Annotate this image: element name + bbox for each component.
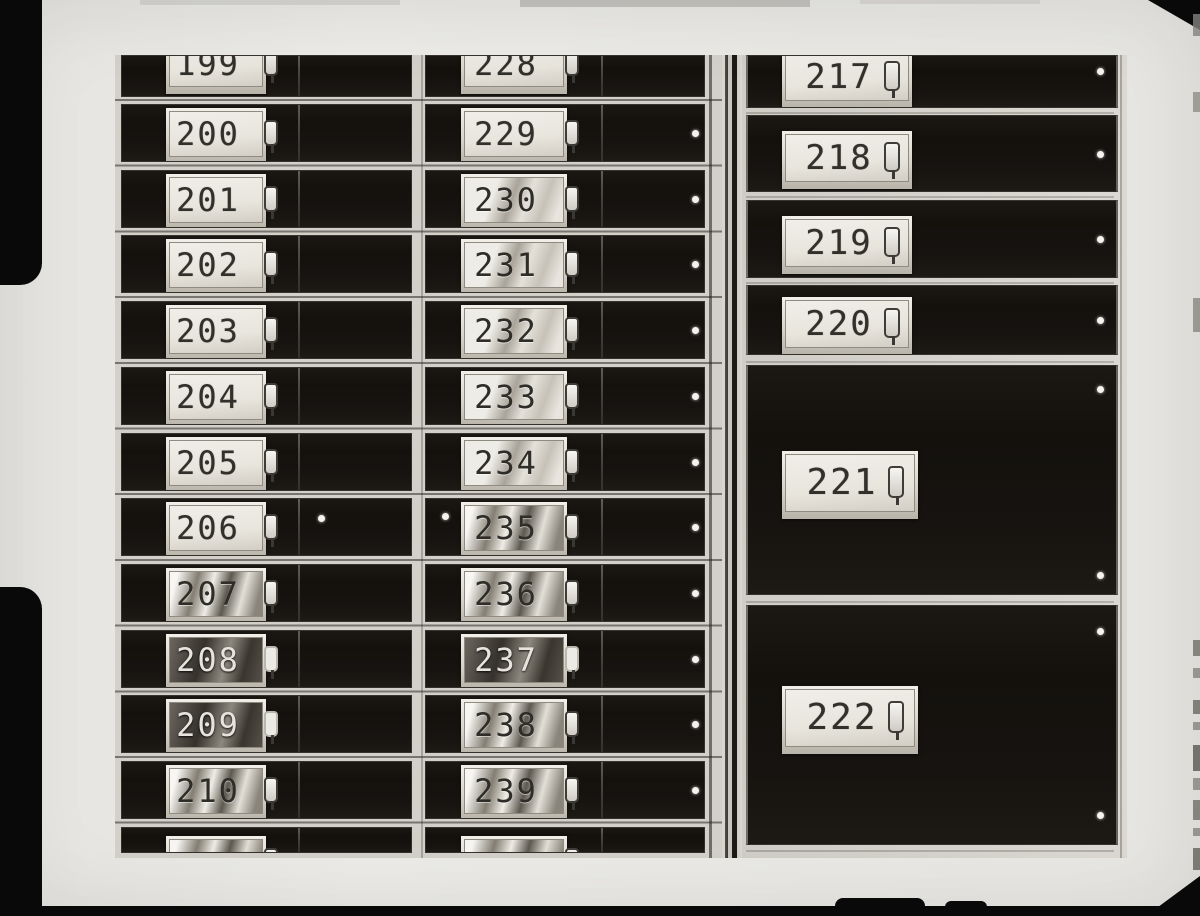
plate-number: 230 (465, 177, 563, 223)
rivet-dot (692, 261, 699, 268)
top-edge-smudge (860, 0, 1040, 4)
rail-groove (746, 601, 1114, 603)
number-plate-holder (461, 836, 567, 853)
number-plate-holder: 203 (166, 305, 266, 359)
rivet-dot (692, 393, 699, 400)
number-plate-holder: 234 (461, 437, 567, 491)
number-plate-holder: 206 (166, 502, 266, 556)
photograph: 1992282002292012302022312032322042332052… (0, 0, 1200, 916)
plate-number: 233 (465, 374, 563, 420)
number-plate: 203 (169, 308, 263, 354)
plate-number: 202 (170, 242, 262, 288)
box-face: 235 (425, 498, 705, 556)
plate-number: 232 (465, 308, 563, 354)
key-latch-icon (884, 308, 900, 338)
number-plate: 202 (169, 242, 263, 288)
film-edge-tick (1193, 640, 1200, 656)
box-face: 207 (121, 564, 412, 622)
key-latch-icon (565, 449, 579, 475)
rivet-dot (1097, 236, 1104, 243)
number-plate: 204 (169, 374, 263, 420)
box-face: 218 (746, 115, 1118, 192)
plate-number: 236 (465, 571, 563, 617)
rail-groove (746, 850, 1114, 852)
rivet-dot (1097, 812, 1104, 819)
number-plate-holder: 202 (166, 239, 266, 293)
number-plate-holder: 218 (782, 131, 912, 189)
number-plate-holder: 217 (782, 55, 912, 108)
top-edge-smudge (520, 0, 810, 7)
film-edge-tick (1193, 92, 1200, 112)
box-face: 233 (425, 367, 705, 425)
number-plate: 218 (785, 134, 909, 182)
box-face: 234 (425, 433, 705, 491)
number-plate-holder: 228 (461, 55, 567, 94)
number-plate (464, 839, 564, 853)
key-latch-icon (565, 55, 579, 76)
rivet-dot (318, 515, 325, 522)
number-plate-holder: 209 (166, 699, 266, 753)
box-face: 220 (746, 285, 1118, 355)
rail-groove (746, 112, 1114, 114)
key-latch-icon (565, 251, 579, 277)
plate-number: 203 (170, 308, 262, 354)
number-plate-holder: 222 (782, 686, 918, 754)
key-latch-icon (264, 251, 278, 277)
number-plate-holder: 239 (461, 765, 567, 819)
film-edge-tick (1193, 778, 1200, 790)
box-face: 199 (121, 55, 412, 97)
number-plate: 235 (464, 505, 564, 551)
rivet-dot (1097, 317, 1104, 324)
number-plate: 210 (169, 768, 263, 814)
key-latch-icon (264, 711, 278, 737)
rail-groove (1120, 55, 1122, 858)
number-plate: 228 (464, 55, 564, 87)
box-face: 210 (121, 761, 412, 819)
number-plate: 220 (785, 300, 909, 348)
rail-groove (746, 196, 1114, 198)
plate-number: 234 (465, 440, 563, 486)
number-plate: 233 (464, 374, 564, 420)
box-face: 221 (746, 365, 1118, 595)
rivet-dot (1097, 151, 1104, 158)
safe-deposit-box-panel: 1992282002292012302022312032322042332052… (115, 55, 1127, 858)
number-plate-holder: 210 (166, 765, 266, 819)
number-plate: 200 (169, 111, 263, 157)
rivet-dot (692, 656, 699, 663)
number-plate: 239 (464, 768, 564, 814)
box-face: 206 (121, 498, 412, 556)
key-latch-icon (264, 848, 278, 853)
number-plate-holder: 230 (461, 174, 567, 228)
box-face: 231 (425, 235, 705, 293)
rail-groove (746, 361, 1114, 363)
film-edge-tick (1193, 700, 1200, 714)
rivet-dot (692, 327, 699, 334)
rail-groove (709, 55, 712, 858)
number-plate-holder: 235 (461, 502, 567, 556)
number-plate: 222 (785, 689, 915, 747)
plate-number: 205 (170, 440, 262, 486)
key-latch-icon (565, 848, 579, 853)
number-plate-holder: 201 (166, 174, 266, 228)
box-face: 236 (425, 564, 705, 622)
rail-groove (421, 55, 423, 858)
bottom-edge-strip (0, 906, 1200, 916)
number-plate: 221 (785, 454, 915, 512)
plate-number: 207 (170, 571, 262, 617)
number-plate-holder: 205 (166, 437, 266, 491)
key-latch-icon (565, 580, 579, 606)
plate-number: 235 (465, 505, 563, 551)
plate-number: 208 (170, 637, 262, 683)
plate-number: 229 (465, 111, 563, 157)
key-latch-icon (264, 449, 278, 475)
number-plate: 229 (464, 111, 564, 157)
film-edge-tick (1193, 800, 1200, 820)
film-strip-left-top (0, 0, 42, 285)
film-edge-tick (1193, 722, 1200, 730)
key-latch-icon (264, 514, 278, 540)
box-face: 202 (121, 235, 412, 293)
number-plate: 231 (464, 242, 564, 288)
key-latch-icon (565, 646, 579, 672)
number-plate: 236 (464, 571, 564, 617)
box-face: 222 (746, 605, 1118, 845)
box-face: 208 (121, 630, 412, 688)
number-plate-holder: 238 (461, 699, 567, 753)
rail-groove (746, 282, 1114, 284)
film-edge-tick (1193, 848, 1200, 870)
number-plate: 238 (464, 702, 564, 748)
box-face: 217 (746, 55, 1118, 108)
box-face: 238 (425, 695, 705, 753)
plate-number: 238 (465, 702, 563, 748)
large-boxes-unit: 217218219220221222 (742, 55, 1127, 858)
number-plate-holder: 220 (782, 297, 912, 355)
box-face: 232 (425, 301, 705, 359)
number-plate: 234 (464, 440, 564, 486)
rivet-dot (692, 196, 699, 203)
rivet-dot (692, 524, 699, 531)
box-face: 204 (121, 367, 412, 425)
box-face: 229 (425, 104, 705, 162)
key-latch-icon (264, 186, 278, 212)
key-latch-icon (884, 142, 900, 172)
number-plate-holder: 231 (461, 239, 567, 293)
number-plate-holder: 207 (166, 568, 266, 622)
unit-divider (722, 55, 742, 858)
film-edge-tick (1193, 668, 1200, 678)
key-latch-icon (565, 514, 579, 540)
key-latch-icon (565, 120, 579, 146)
rivet-dot (1097, 386, 1104, 393)
plate-number: 206 (170, 505, 262, 551)
key-latch-icon (888, 466, 904, 498)
plate-number: 201 (170, 177, 262, 223)
number-plate-holder: 200 (166, 108, 266, 162)
key-latch-icon (264, 777, 278, 803)
box-face: 228 (425, 55, 705, 97)
number-plate-holder: 237 (461, 634, 567, 688)
rivet-dot (692, 459, 699, 466)
number-plate: 232 (464, 308, 564, 354)
number-plate: 207 (169, 571, 263, 617)
number-plate (169, 839, 263, 853)
box-face: 209 (121, 695, 412, 753)
plate-number: 200 (170, 111, 262, 157)
plate-number: 210 (170, 768, 262, 814)
key-latch-icon (264, 646, 278, 672)
box-face: 205 (121, 433, 412, 491)
key-latch-icon (565, 711, 579, 737)
plate-number: 237 (465, 637, 563, 683)
number-plate-holder: 229 (461, 108, 567, 162)
number-plate-holder: 204 (166, 371, 266, 425)
plate-number: 228 (465, 55, 563, 87)
rivet-dot (1097, 68, 1104, 75)
number-plate-holder (166, 836, 266, 853)
number-plate-holder: 232 (461, 305, 567, 359)
number-plate: 199 (169, 55, 263, 87)
plate-number: 199 (170, 55, 262, 87)
number-plate: 217 (785, 55, 909, 101)
rivet-dot (692, 590, 699, 597)
plate-number: 204 (170, 374, 262, 420)
number-plate-holder: 233 (461, 371, 567, 425)
box-face: 203 (121, 301, 412, 359)
box-face: 201 (121, 170, 412, 228)
box-face: 200 (121, 104, 412, 162)
number-plate-holder: 221 (782, 451, 918, 519)
key-latch-icon (264, 55, 278, 76)
number-plate: 209 (169, 702, 263, 748)
key-latch-icon (264, 383, 278, 409)
key-latch-icon (884, 61, 900, 91)
key-latch-icon (884, 227, 900, 257)
key-latch-icon (264, 580, 278, 606)
number-plate-holder: 199 (166, 55, 266, 94)
key-latch-icon (565, 383, 579, 409)
rivet-dot (1097, 572, 1104, 579)
key-latch-icon (264, 317, 278, 343)
box-face: 219 (746, 200, 1118, 278)
rivet-dot (692, 787, 699, 794)
number-plate-holder: 219 (782, 216, 912, 274)
number-plate: 206 (169, 505, 263, 551)
rivet-dot (1097, 628, 1104, 635)
key-latch-icon (264, 120, 278, 146)
box-face (121, 827, 412, 853)
number-plate: 208 (169, 637, 263, 683)
number-plate: 205 (169, 440, 263, 486)
box-face (425, 827, 705, 853)
plate-number: 209 (170, 702, 262, 748)
box-face: 237 (425, 630, 705, 688)
key-latch-icon (888, 701, 904, 733)
number-plate: 230 (464, 177, 564, 223)
film-edge-tick (1193, 14, 1200, 36)
box-face: 230 (425, 170, 705, 228)
number-plate-holder: 208 (166, 634, 266, 688)
film-edge-tick (1193, 298, 1200, 332)
key-latch-icon (565, 777, 579, 803)
number-plate: 219 (785, 219, 909, 267)
film-edge-tick (1193, 745, 1200, 771)
rivet-dot (442, 513, 449, 520)
plate-number: 239 (465, 768, 563, 814)
film-edge-tick (1193, 828, 1200, 836)
rivet-dot (692, 721, 699, 728)
number-plate: 237 (464, 637, 564, 683)
key-latch-icon (565, 186, 579, 212)
box-face: 239 (425, 761, 705, 819)
number-plate: 201 (169, 177, 263, 223)
rivet-dot (692, 130, 699, 137)
number-plate-holder: 236 (461, 568, 567, 622)
small-boxes-unit: 1992282002292012302022312032322042332052… (115, 55, 722, 858)
key-latch-icon (565, 317, 579, 343)
top-edge-smudge (140, 0, 400, 5)
film-strip-left-bottom (0, 587, 42, 916)
plate-number: 231 (465, 242, 563, 288)
